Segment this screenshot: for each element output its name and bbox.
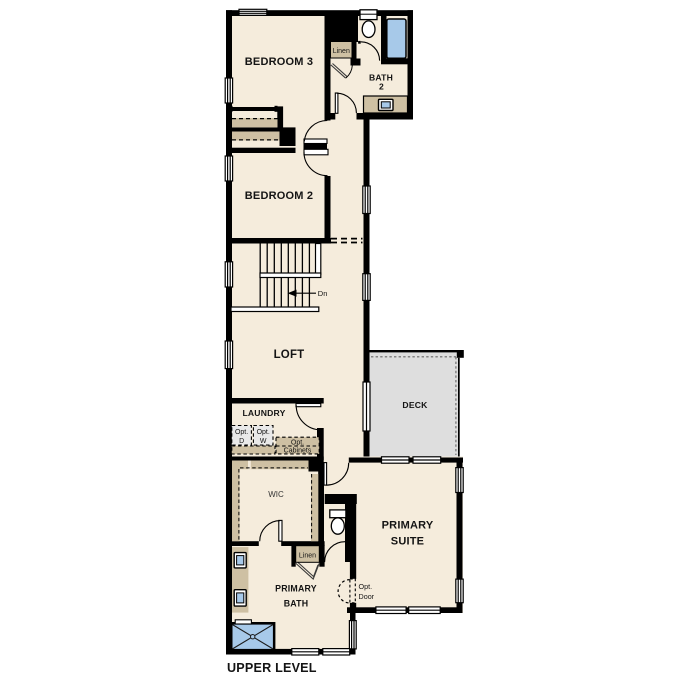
svg-text:SUITE: SUITE xyxy=(391,535,424,547)
svg-text:BEDROOM 3: BEDROOM 3 xyxy=(245,56,313,68)
svg-text:DECK: DECK xyxy=(402,400,428,410)
svg-text:Opt.: Opt. xyxy=(257,429,270,436)
svg-text:UPPER LEVEL: UPPER LEVEL xyxy=(227,661,317,675)
svg-text:Opt.: Opt. xyxy=(291,439,304,446)
svg-text:W: W xyxy=(260,438,267,445)
svg-text:Opt.: Opt. xyxy=(235,429,248,436)
svg-text:2: 2 xyxy=(379,82,384,92)
svg-text:BEDROOM 2: BEDROOM 2 xyxy=(245,190,313,202)
svg-text:PRIMARY: PRIMARY xyxy=(382,519,434,531)
svg-text:Cabinets: Cabinets xyxy=(284,447,312,454)
svg-text:WIC: WIC xyxy=(268,490,284,499)
svg-text:PRIMARY: PRIMARY xyxy=(275,584,317,594)
svg-text:Linen: Linen xyxy=(333,48,350,55)
svg-text:Linen: Linen xyxy=(299,552,316,559)
svg-text:Opt.: Opt. xyxy=(359,582,373,591)
svg-text:Door: Door xyxy=(359,592,375,601)
svg-text:D: D xyxy=(239,438,244,445)
svg-text:LAUNDRY: LAUNDRY xyxy=(242,408,285,418)
svg-text:BATH: BATH xyxy=(284,599,309,609)
svg-text:Dn: Dn xyxy=(318,289,328,298)
svg-text:LOFT: LOFT xyxy=(274,349,305,361)
